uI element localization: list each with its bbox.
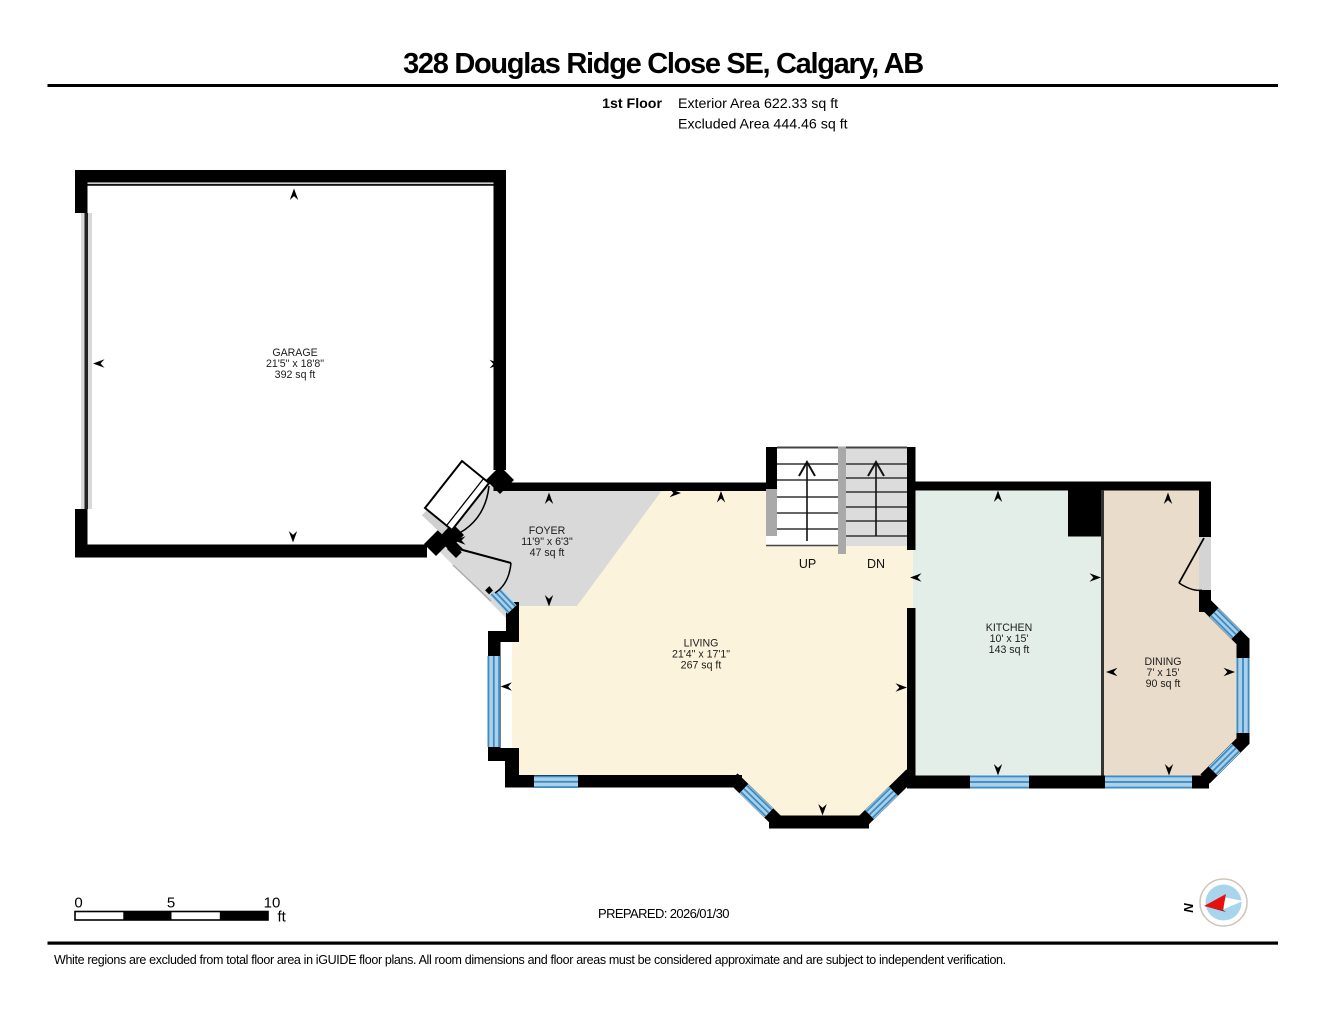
svg-text:PREPARED: 2026/01/30: PREPARED: 2026/01/30	[598, 906, 729, 921]
svg-text:Excluded Area 444.46 sq ft: Excluded Area 444.46 sq ft	[678, 117, 848, 133]
svg-text:Exterior Area 622.33 sq ft: Exterior Area 622.33 sq ft	[678, 96, 838, 112]
svg-text:143 sq ft: 143 sq ft	[989, 644, 1030, 656]
svg-text:267 sq ft: 267 sq ft	[681, 660, 722, 672]
svg-text:ft: ft	[278, 909, 287, 926]
svg-text:White regions are excluded fro: White regions are excluded from total fl…	[54, 953, 1006, 967]
svg-text:90 sq ft: 90 sq ft	[1146, 678, 1181, 690]
svg-text:328 Douglas Ridge Close SE, Ca: 328 Douglas Ridge Close SE, Calgary, AB	[403, 48, 923, 80]
svg-text:0: 0	[74, 895, 82, 912]
svg-text:N: N	[1181, 903, 1196, 913]
svg-text:1st Floor: 1st Floor	[602, 96, 662, 112]
svg-text:DN: DN	[867, 557, 885, 571]
svg-text:5: 5	[167, 895, 175, 912]
svg-text:UP: UP	[799, 557, 816, 571]
svg-text:392 sq ft: 392 sq ft	[275, 369, 316, 381]
svg-text:47 sq ft: 47 sq ft	[530, 547, 565, 559]
